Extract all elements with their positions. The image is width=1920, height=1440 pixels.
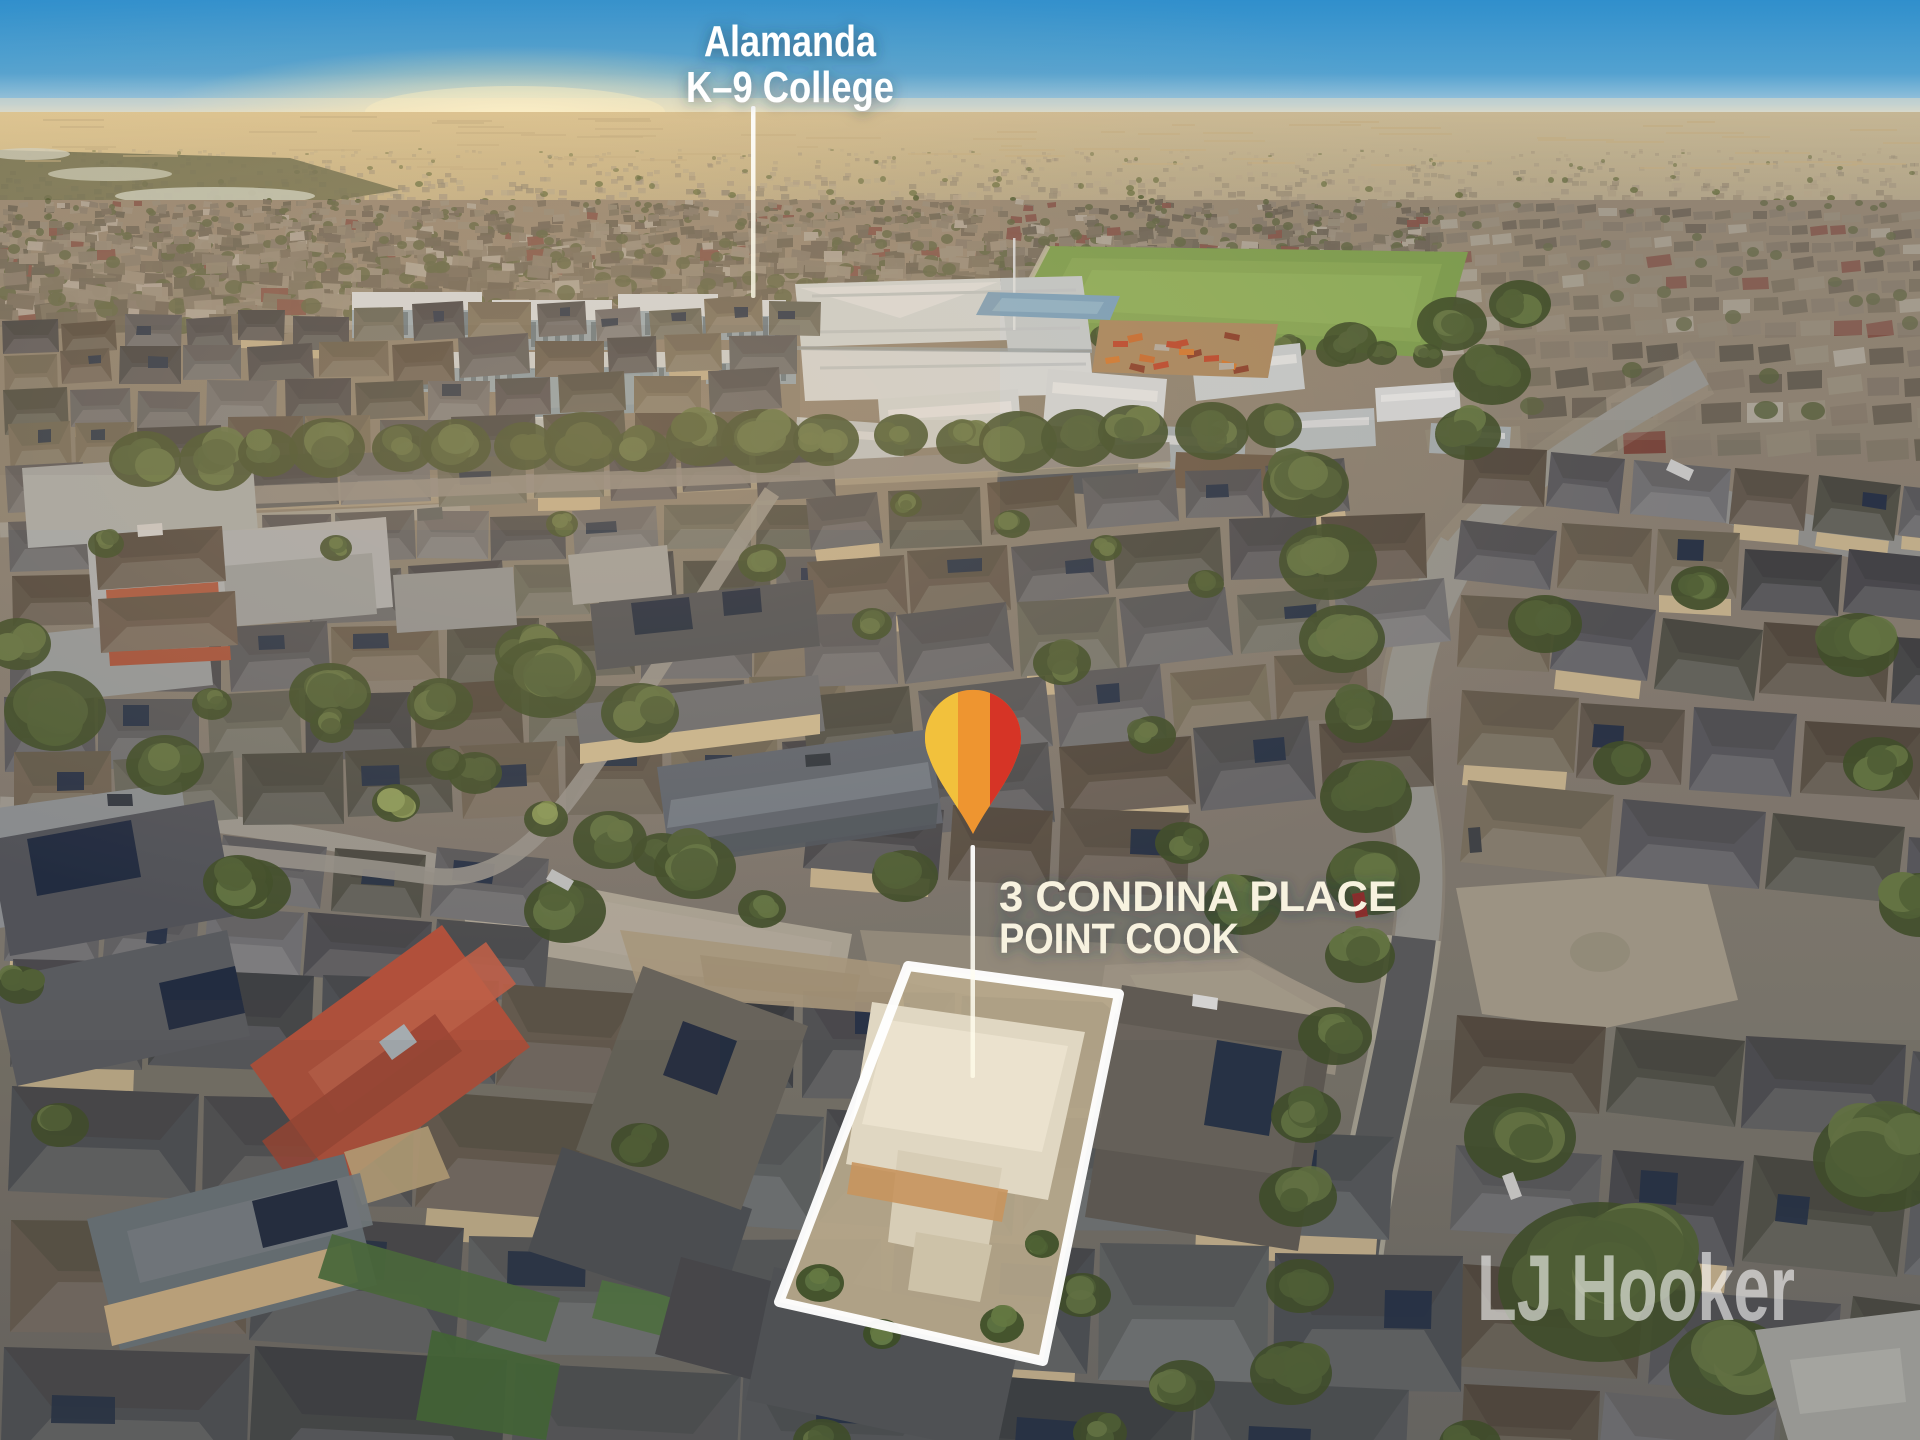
svg-text:Alamanda: Alamanda — [704, 17, 876, 66]
svg-text:LJ Hooker: LJ Hooker — [1477, 1235, 1795, 1340]
svg-text:3 CONDINA PLACE: 3 CONDINA PLACE — [999, 873, 1397, 921]
svg-text:K–9 College: K–9 College — [686, 63, 894, 112]
svg-text:POINT COOK: POINT COOK — [999, 915, 1239, 963]
